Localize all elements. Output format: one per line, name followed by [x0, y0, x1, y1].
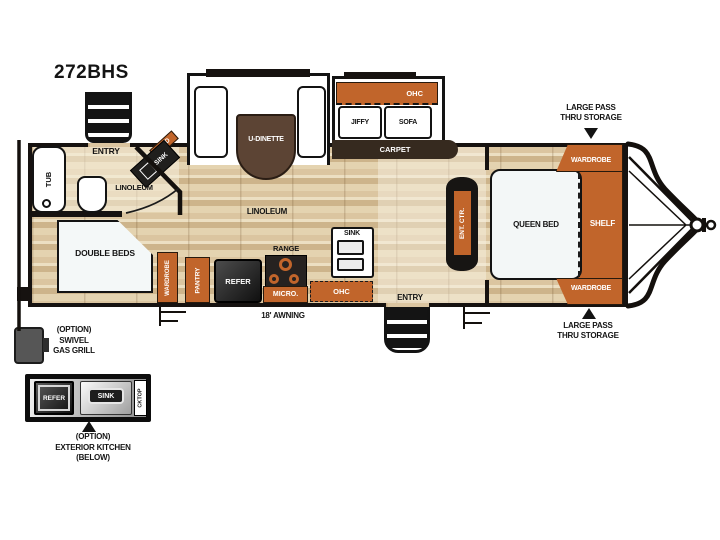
entry-bottom-label: ENTRY	[388, 293, 432, 302]
floorplan-page: 272BHS ENTRY TUB MED SINK LINOLEUM U-DIN…	[0, 0, 720, 540]
dinette-slide-endcap	[206, 69, 310, 77]
entry-steps-top	[85, 92, 132, 143]
exterior-kitchen-box: REFER SINK CKTOP	[25, 374, 151, 422]
grill-line2: SWIVEL	[42, 336, 106, 347]
tub-faucet	[42, 199, 51, 208]
entertainment-center-face: ENT. CTR.	[454, 191, 471, 255]
microwave-label: MICRO.	[273, 291, 298, 298]
sofa-ohc: OHC	[336, 82, 438, 105]
ext-caption-line3: (BELOW)	[37, 453, 149, 464]
sofa-ohc-label: OHC	[406, 89, 423, 98]
hitch-jack-wheel	[707, 221, 715, 229]
wardrobe-front-top-label: WARDROBE	[561, 157, 621, 164]
storage-bottom-line2: THRU STORAGE	[538, 331, 638, 341]
dinette-bench-right	[297, 86, 326, 158]
trailer-nose	[628, 144, 698, 306]
exterior-refer: REFER	[34, 381, 74, 415]
toilet	[77, 176, 107, 213]
refrigerator: REFER	[214, 259, 262, 303]
dinette-table: U-DINETTE	[236, 114, 296, 180]
bed-divider-dashed	[578, 173, 580, 277]
gas-grill	[14, 327, 44, 364]
kitchen-sink-counter: SINK	[331, 227, 374, 278]
ext-caption-line2: EXTERIOR KITCHEN	[37, 443, 149, 454]
sink-basin-bottom	[337, 258, 364, 271]
entry-steps-bottom	[384, 307, 430, 353]
grill-line1: (OPTION)	[42, 325, 106, 336]
kitchen-ohc: OHC	[310, 281, 373, 302]
storage-arrow-down-icon	[584, 128, 598, 139]
entry-top-label: ENTRY	[80, 146, 132, 156]
corner-sink-label: SINK	[153, 151, 169, 167]
double-beds-label: DOUBLE BEDS	[60, 248, 150, 258]
range-label: RANGE	[262, 244, 310, 253]
storage-top-line1: LARGE PASS	[543, 103, 639, 113]
hitch-coupler	[691, 219, 703, 231]
burner-left	[269, 274, 279, 284]
storage-arrow-up-icon	[582, 308, 596, 319]
microwave: MICRO.	[263, 286, 308, 303]
refrigerator-label: REFER	[225, 277, 250, 286]
page-title: 272BHS	[54, 62, 129, 84]
sofa-slide-endcap	[344, 72, 416, 79]
carpet-banner: CARPET	[332, 140, 458, 159]
burner-right	[289, 274, 299, 284]
queen-bed: QUEEN BED	[490, 169, 582, 280]
hitch-a-frame	[629, 157, 694, 293]
grill-line3: GAS GRILL	[42, 346, 106, 357]
dinette-bench-left	[194, 86, 228, 158]
exterior-cooktop-label: CKTOP	[138, 388, 144, 407]
sofa-label: SOFA	[399, 119, 417, 126]
exterior-sink-label: SINK	[98, 393, 115, 400]
storage-bottom-line1: LARGE PASS	[538, 321, 638, 331]
exterior-refer-label: REFER	[43, 395, 65, 402]
jiffy-cushion: JIFFY	[338, 106, 382, 139]
bedroom-wall-stub-bottom	[485, 280, 489, 307]
storage-callout-bottom: LARGE PASS THRU STORAGE	[538, 321, 638, 341]
carpet-label: CARPET	[380, 145, 411, 154]
grill-callout: (OPTION) SWIVEL GAS GRILL	[42, 325, 106, 357]
stab-jack-left	[160, 307, 186, 326]
kitchen-wardrobe-label: WARDROBE	[165, 260, 171, 296]
ext-caption-line1: (OPTION)	[37, 432, 149, 443]
stab-jack-right	[464, 307, 490, 329]
jiffy-label: JIFFY	[351, 119, 369, 126]
tub-label: TUB	[44, 172, 53, 187]
kitchen-wardrobe: WARDROBE	[157, 252, 178, 303]
dinette-label: U-DINETTE	[238, 136, 294, 143]
sofa-cushion: SOFA	[384, 106, 432, 139]
storage-top-line2: THRU STORAGE	[543, 113, 639, 123]
kitchen-sink-label: SINK	[333, 230, 371, 237]
sink-basin-top	[337, 240, 364, 255]
wardrobe-front-bottom-label: WARDROBE	[561, 285, 621, 292]
storage-callout-top: LARGE PASS THRU STORAGE	[543, 103, 639, 123]
pantry: PANTRY	[185, 257, 210, 303]
exterior-sink-badge: SINK	[88, 388, 124, 404]
exterior-cooktop-strip: CKTOP	[134, 380, 147, 416]
kitchen-ohc-label: OHC	[333, 287, 350, 296]
queen-bed-label: QUEEN BED	[513, 220, 559, 229]
bumper-bracket	[17, 287, 30, 301]
shelf-label: SHELF	[582, 219, 623, 228]
bedroom-wall-stub-top	[485, 143, 489, 170]
burner-large	[279, 258, 292, 271]
bath-linoleum-label: LINOLEUM	[103, 183, 165, 192]
range-cooktop	[265, 255, 307, 288]
hitch-jack-post	[702, 218, 706, 232]
exterior-kitchen-arrow-icon	[82, 421, 96, 432]
exterior-kitchen-callout: (OPTION) EXTERIOR KITCHEN (BELOW)	[37, 432, 149, 464]
main-linoleum-label: LINOLEUM	[236, 207, 298, 216]
hitch-a-frame-inner	[629, 171, 696, 279]
ent-ctr-label: ENT. CTR.	[459, 207, 466, 238]
awning-label: 18' AWNING	[247, 311, 319, 320]
pantry-label: PANTRY	[194, 267, 201, 293]
